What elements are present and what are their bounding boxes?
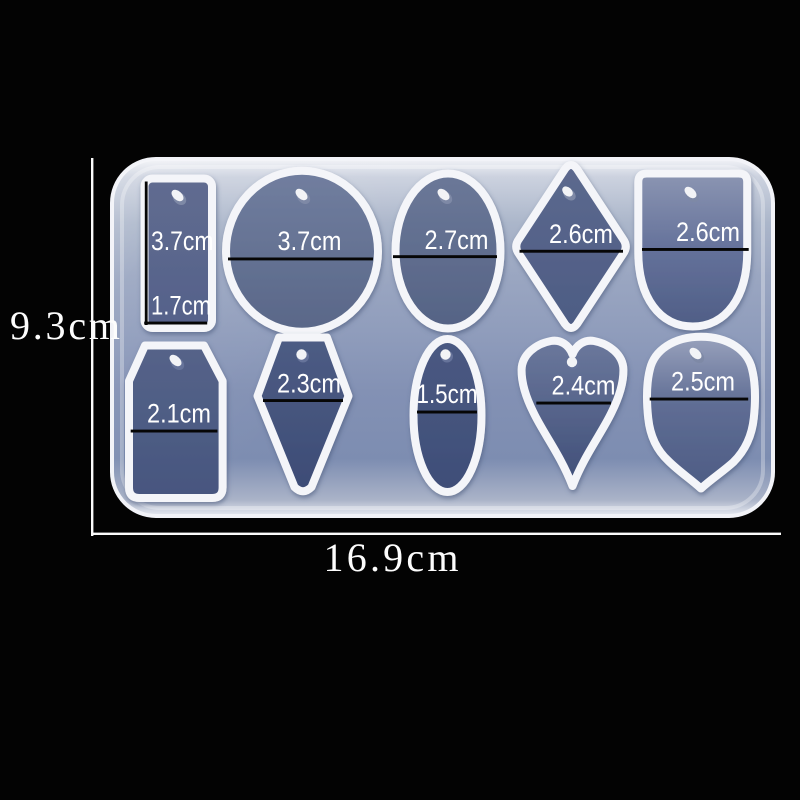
svg-text:2.3cm: 2.3cm	[277, 369, 341, 399]
svg-text:2.5cm: 2.5cm	[671, 367, 735, 397]
svg-text:2.6cm: 2.6cm	[676, 217, 740, 247]
svg-text:2.7cm: 2.7cm	[425, 225, 489, 255]
svg-text:2.6cm: 2.6cm	[549, 219, 613, 249]
svg-text:2.1cm: 2.1cm	[147, 399, 211, 429]
svg-text:9.3cm: 9.3cm	[10, 303, 120, 348]
svg-text:3.7cm: 3.7cm	[278, 226, 342, 256]
svg-text:1.5cm: 1.5cm	[417, 379, 478, 409]
svg-text:3.7cm: 3.7cm	[151, 226, 214, 256]
svg-text:2.4cm: 2.4cm	[552, 371, 616, 401]
svg-text:1.7cm: 1.7cm	[151, 291, 211, 321]
